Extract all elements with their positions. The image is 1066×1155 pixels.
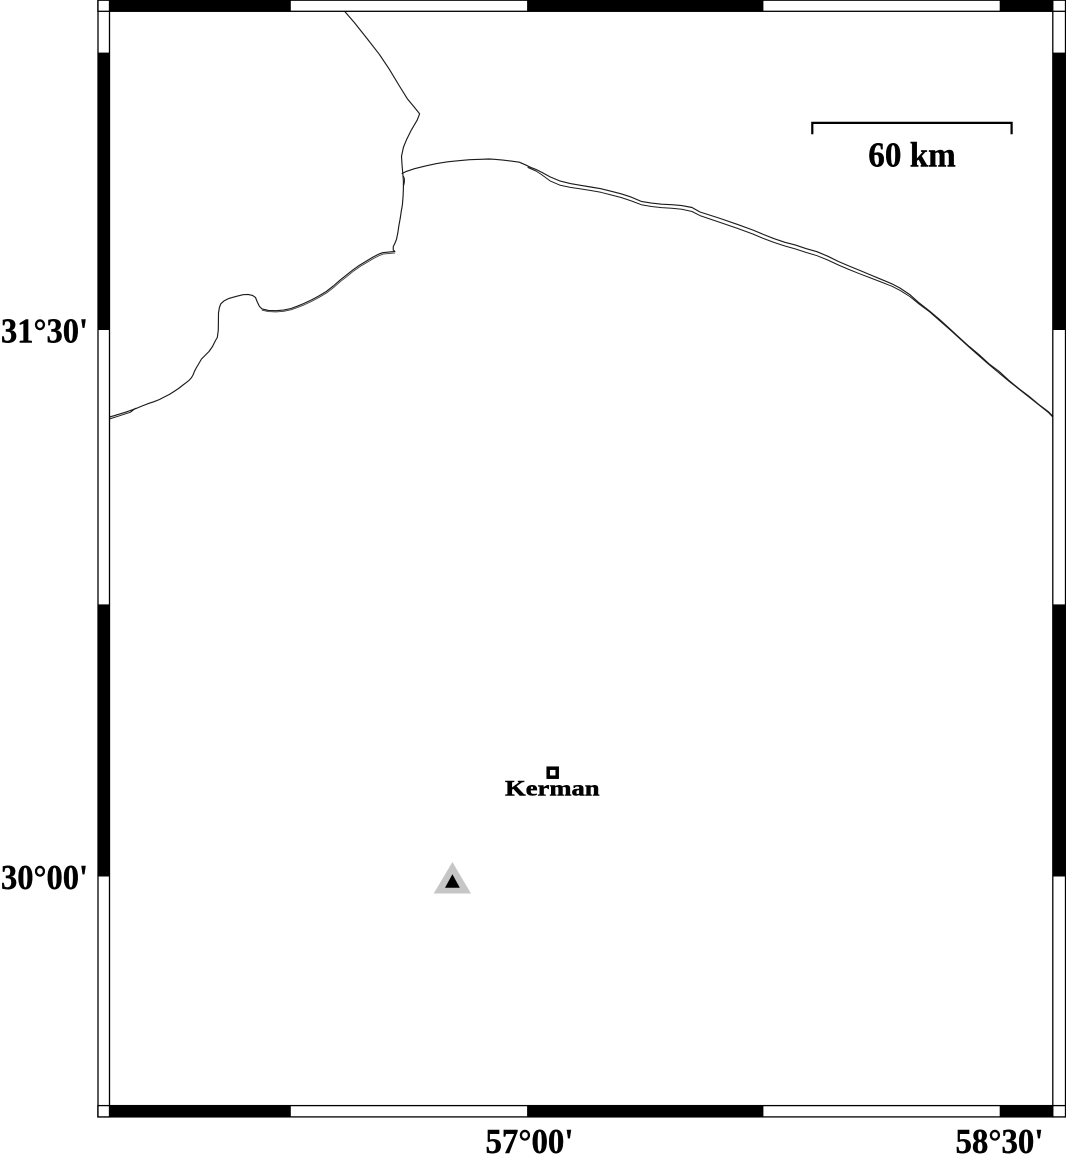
svg-text:Kerman: Kerman — [505, 775, 600, 800]
svg-text:60 km: 60 km — [868, 136, 956, 175]
svg-text:57°00': 57°00' — [486, 1122, 574, 1155]
svg-text:58°30': 58°30' — [956, 1122, 1044, 1155]
svg-text:31°30': 31°30' — [1, 312, 88, 351]
svg-text:30°00': 30°00' — [1, 858, 88, 897]
